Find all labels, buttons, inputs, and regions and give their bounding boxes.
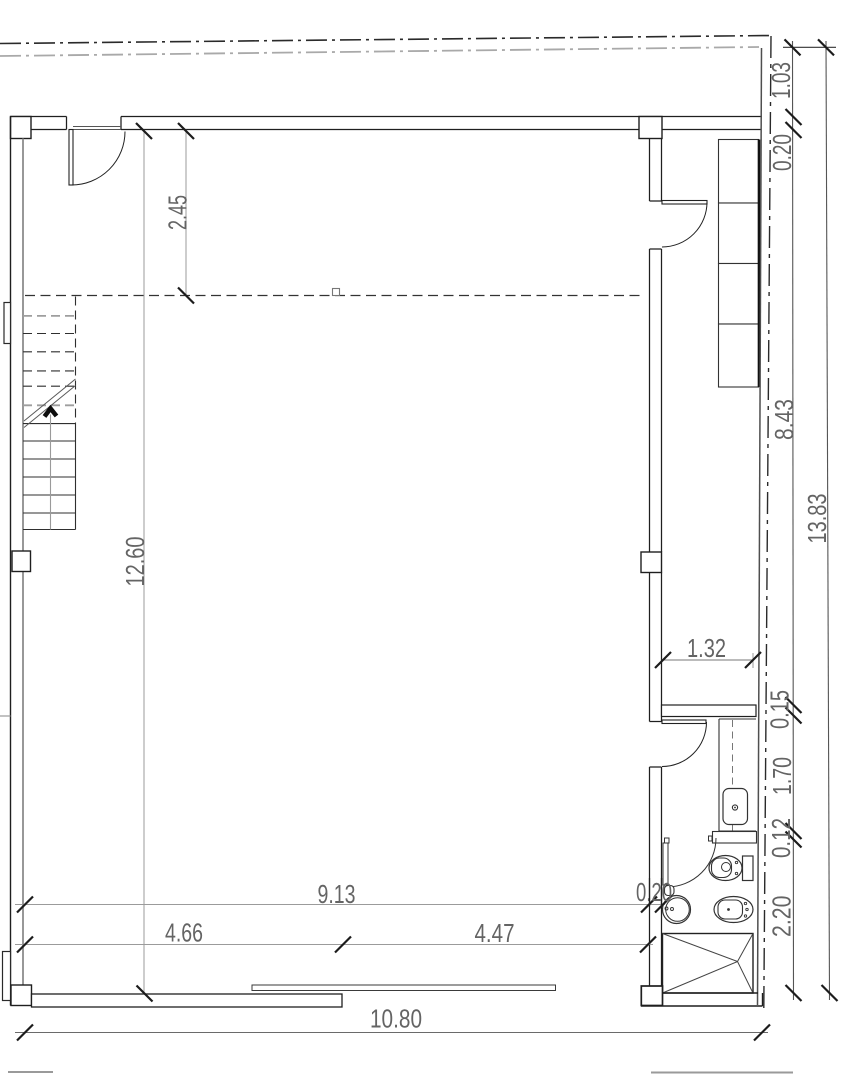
svg-text:12.60: 12.60 [122, 537, 150, 587]
svg-text:8.43: 8.43 [771, 399, 799, 440]
svg-text:13.83: 13.83 [804, 494, 832, 544]
svg-text:10.80: 10.80 [370, 1006, 422, 1034]
svg-text:0.20: 0.20 [769, 134, 797, 171]
svg-text:1.32: 1.32 [687, 635, 726, 663]
svg-text:4.47: 4.47 [475, 920, 515, 948]
svg-text:2.45: 2.45 [165, 195, 193, 230]
svg-text:1.70: 1.70 [769, 757, 797, 795]
svg-text:0.15: 0.15 [767, 690, 795, 729]
svg-text:2.20: 2.20 [769, 896, 797, 938]
svg-text:1.03: 1.03 [768, 62, 796, 99]
svg-text:0.20: 0.20 [636, 879, 672, 907]
svg-text:9.13: 9.13 [318, 881, 356, 909]
svg-text:4.66: 4.66 [165, 920, 203, 948]
svg-text:0.12: 0.12 [768, 818, 796, 858]
